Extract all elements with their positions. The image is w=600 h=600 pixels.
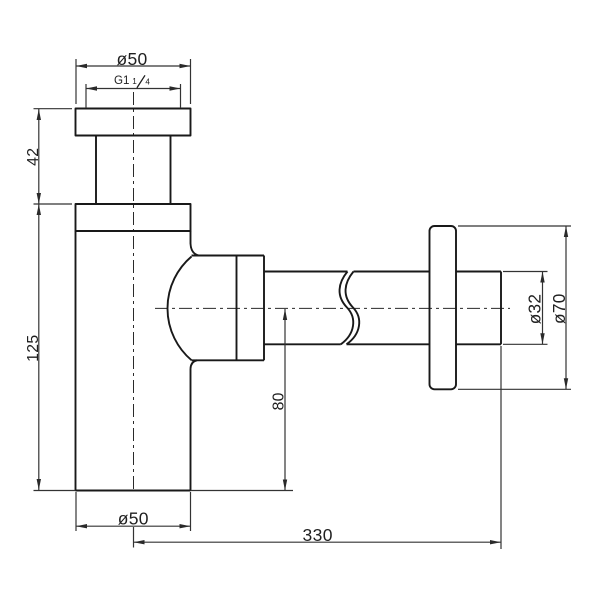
svg-text:80: 80 (271, 392, 288, 410)
svg-text:1: 1 (132, 77, 137, 86)
svg-text:ø50: ø50 (118, 509, 149, 529)
svg-text:ø32: ø32 (525, 294, 545, 325)
svg-text:ø50: ø50 (116, 49, 147, 69)
svg-text:42: 42 (25, 148, 42, 166)
svg-text:330: 330 (302, 525, 332, 545)
svg-text:ø70: ø70 (549, 293, 569, 324)
svg-text:G1: G1 (114, 74, 129, 87)
svg-text:4: 4 (145, 77, 150, 86)
svg-text:125: 125 (25, 335, 42, 362)
